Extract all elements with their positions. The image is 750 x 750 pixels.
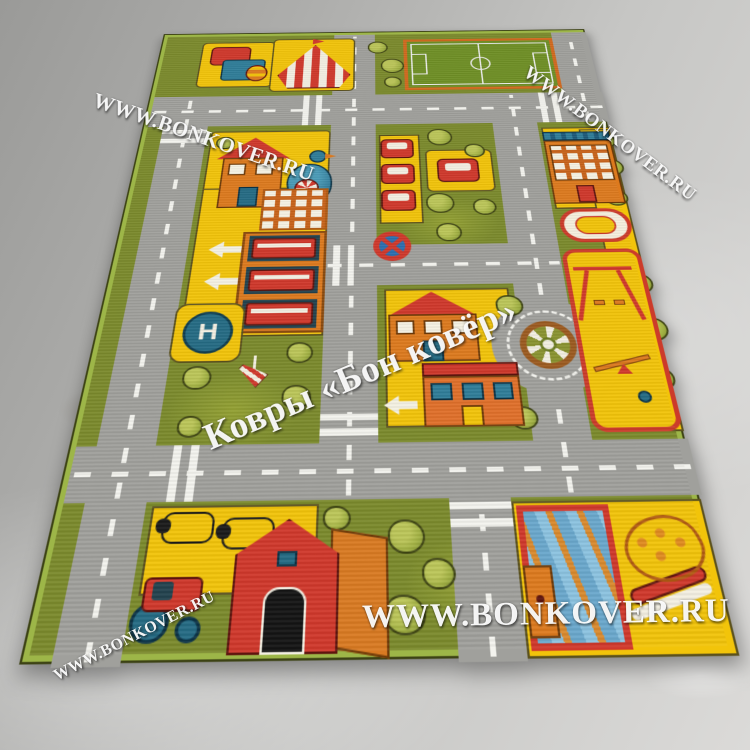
watermark-bottom-center: WWW.BONKOVER.RU: [362, 593, 730, 636]
house-b-window: [430, 383, 453, 401]
swing-crossbar: [573, 266, 632, 270]
tree: [464, 144, 486, 158]
car-windshield: [388, 193, 410, 201]
fire-truck: [247, 269, 315, 291]
fire-truck-stripe: [254, 275, 309, 280]
crosswalk: [319, 413, 378, 436]
crosswalk: [449, 501, 514, 527]
fire-truck: [251, 238, 317, 259]
helipad-letter: H: [196, 319, 220, 346]
house-b-window: [493, 382, 514, 399]
fire-truck-stripe: [251, 308, 308, 313]
swing-seat: [613, 300, 625, 305]
field-goal-box-left: [411, 54, 428, 75]
station-window: [227, 163, 246, 175]
house-b-window: [461, 382, 484, 400]
fire-station-grid-building: [259, 188, 329, 230]
crosswalk: [302, 95, 323, 125]
station-door: [236, 187, 258, 207]
crosswalk: [332, 245, 354, 286]
tree: [426, 193, 456, 213]
car-windshield: [387, 142, 408, 149]
tree: [381, 59, 405, 73]
house-b-door: [461, 405, 485, 427]
tree: [368, 42, 388, 54]
fire-truck-stripe: [257, 243, 311, 248]
tree: [322, 506, 351, 531]
fire-truck: [244, 302, 314, 326]
barn-door: [259, 587, 307, 655]
track-infield: [574, 216, 619, 235]
tree: [384, 77, 402, 88]
tree: [436, 223, 463, 242]
school-windows: [549, 144, 616, 180]
car-windshield: [387, 167, 408, 174]
photo-scene: H: [0, 0, 750, 750]
tree: [388, 519, 426, 554]
tree: [427, 129, 453, 146]
car-windshield: [445, 163, 471, 171]
barn-window: [277, 551, 298, 567]
school-door: [576, 185, 598, 202]
swing-seat: [593, 300, 605, 305]
tractor-cab: [151, 582, 174, 601]
